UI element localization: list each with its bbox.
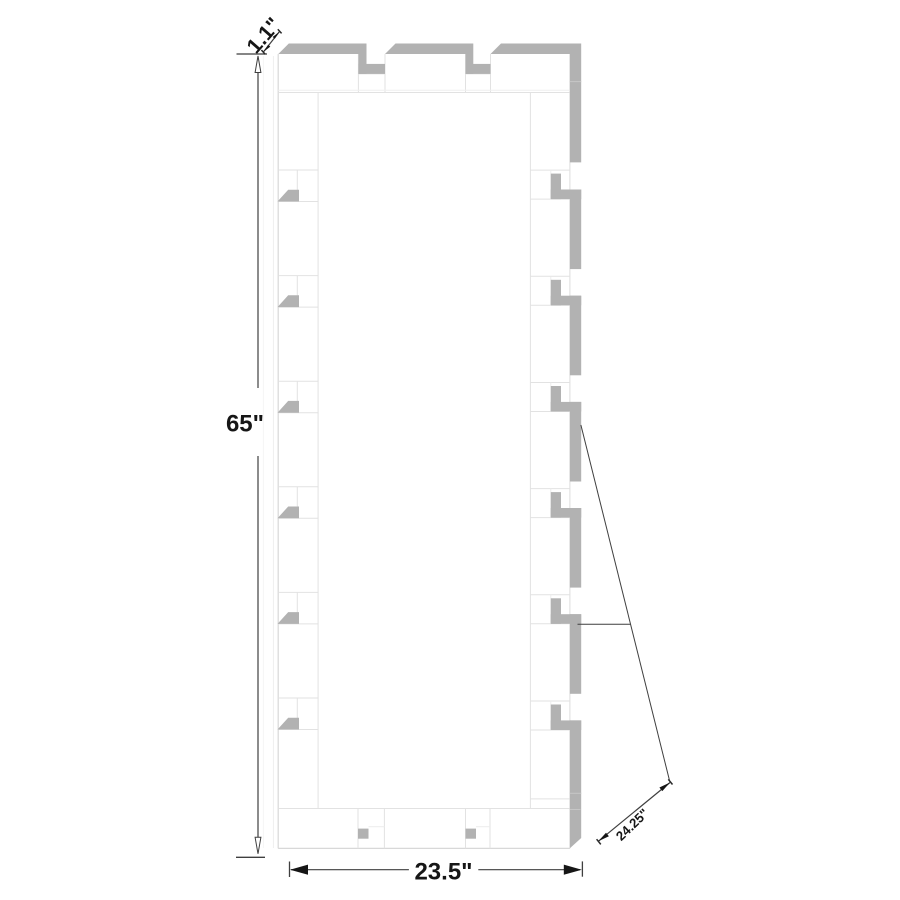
svg-text:65": 65" xyxy=(226,411,264,438)
svg-text:23.5": 23.5" xyxy=(414,859,472,886)
